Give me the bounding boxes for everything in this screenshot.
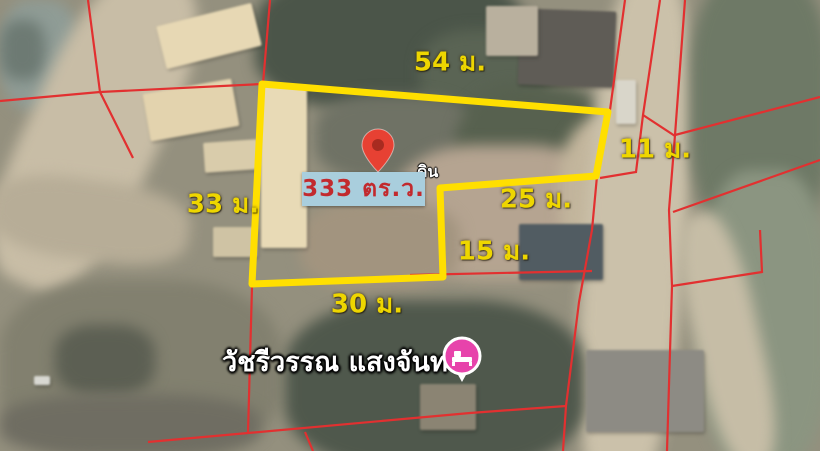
place-name-label[interactable]: วัชรีวรรณ แสงจันทร์ bbox=[222, 340, 462, 383]
lodging-pin-circle bbox=[444, 338, 480, 374]
pin-hole bbox=[372, 139, 384, 151]
area-label-box: 333 ตร.ว. bbox=[302, 172, 425, 206]
lodging-pin-icon[interactable] bbox=[441, 335, 483, 385]
measure-label-middle: 15 ม. bbox=[458, 231, 530, 272]
measure-label-top: 54 ม. bbox=[414, 42, 486, 83]
area-label-text: 333 ตร.ว. bbox=[302, 171, 425, 207]
measure-label-left: 33 ม. bbox=[187, 184, 259, 225]
satellite-map-canvas[interactable]: ดิน 333 ตร.ว. 54 ม. 11 ม. 25 ม. 15 ม. 30… bbox=[0, 0, 820, 451]
measure-label-middle-right: 25 ม. bbox=[500, 179, 572, 220]
measure-label-bottom: 30 ม. bbox=[331, 284, 403, 325]
location-pin-icon[interactable] bbox=[360, 128, 396, 174]
parcel-layer bbox=[0, 0, 820, 451]
measure-label-right: 11 ม. bbox=[619, 129, 691, 170]
